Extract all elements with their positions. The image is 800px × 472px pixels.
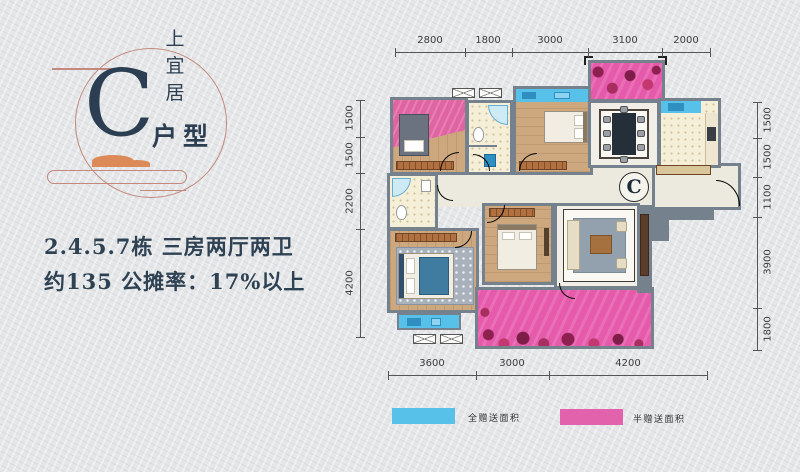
brand-char: 上 bbox=[163, 26, 187, 53]
legend-label-half-gift: 半赠送面积 bbox=[633, 412, 686, 425]
dim-top-4: 3100 bbox=[612, 35, 637, 46]
legend-swatch-full-gift bbox=[392, 408, 455, 424]
room-dining bbox=[588, 100, 660, 168]
bay-item bbox=[407, 318, 421, 326]
dim-line-right bbox=[757, 102, 758, 350]
room-living bbox=[554, 203, 640, 289]
brand-char: 居 bbox=[163, 80, 187, 107]
window-icon bbox=[479, 88, 502, 98]
wardrobe bbox=[395, 233, 457, 242]
window-icon bbox=[413, 334, 436, 344]
bed bbox=[398, 253, 454, 299]
shower bbox=[392, 178, 411, 197]
cloud-deco-underline bbox=[140, 190, 186, 191]
coffee-table bbox=[590, 235, 612, 254]
bed bbox=[497, 224, 537, 270]
cloud-deco-line bbox=[47, 170, 187, 184]
balcony-bottom-half-gift bbox=[475, 287, 654, 349]
dim-right-4: 3900 bbox=[763, 249, 774, 274]
unit-marker: C bbox=[619, 172, 649, 202]
logo-unit-suffix: 户型 bbox=[152, 117, 214, 153]
floor-plan: C bbox=[383, 55, 748, 355]
logo-unit-letter: C bbox=[84, 58, 154, 150]
kitchen-sink bbox=[668, 103, 684, 111]
window-icon bbox=[440, 334, 463, 344]
wall-bracket bbox=[658, 56, 667, 65]
dim-right-2: 1500 bbox=[763, 144, 774, 169]
sink bbox=[421, 180, 431, 192]
balcony-top-half-gift bbox=[588, 60, 665, 102]
dim-line-bottom bbox=[388, 375, 707, 376]
brand-name-vertical: 上 宜 居 bbox=[163, 26, 187, 107]
legend-swatch-half-gift bbox=[560, 409, 623, 425]
dim-left-3: 2200 bbox=[345, 188, 356, 213]
tv-wall bbox=[637, 205, 652, 293]
partition-wall bbox=[469, 145, 497, 147]
stove bbox=[707, 127, 716, 141]
dim-bottom-1: 3600 bbox=[419, 358, 444, 369]
dim-left-2: 1500 bbox=[345, 142, 356, 167]
floorplan-poster: C 上 宜 居 户型 2.4.5.7栋 三房两厅两卫 约135 公摊率：17%以… bbox=[0, 0, 800, 472]
headboard bbox=[498, 225, 536, 230]
dim-right-1: 1500 bbox=[763, 107, 774, 132]
toilet bbox=[473, 127, 484, 142]
dim-top-3: 3000 bbox=[537, 35, 562, 46]
armchair bbox=[616, 221, 627, 232]
dim-top-1: 2800 bbox=[417, 35, 442, 46]
toilet bbox=[396, 205, 407, 220]
dim-bottom-3: 4200 bbox=[615, 358, 640, 369]
dim-right-5: 1800 bbox=[763, 316, 774, 341]
dim-top-2: 1800 bbox=[475, 35, 500, 46]
headboard bbox=[583, 112, 587, 142]
armchair bbox=[616, 258, 627, 269]
window-icon bbox=[452, 88, 475, 98]
shoe-cabinet bbox=[656, 165, 711, 175]
bay-counter bbox=[554, 92, 570, 99]
dim-bottom-2: 3000 bbox=[499, 358, 524, 369]
room-kitchen bbox=[658, 98, 721, 168]
dim-left-1: 1500 bbox=[345, 105, 356, 130]
bay-item bbox=[431, 318, 441, 326]
structural-wall bbox=[652, 208, 669, 241]
dim-top-5: 2000 bbox=[673, 35, 698, 46]
shower bbox=[488, 105, 508, 125]
headboard bbox=[399, 254, 404, 298]
pillow bbox=[404, 140, 424, 152]
room-bathroom-1 bbox=[387, 173, 438, 230]
tv-board bbox=[544, 228, 549, 256]
dining-table bbox=[612, 113, 636, 155]
tv-cabinet bbox=[640, 214, 649, 276]
legend-label-full-gift: 全赠送面积 bbox=[468, 411, 521, 424]
gift-kitchen-bay bbox=[661, 101, 701, 113]
brand-char: 宜 bbox=[163, 53, 187, 80]
mountain-icon bbox=[124, 160, 150, 167]
bed bbox=[544, 111, 588, 143]
wall-bracket bbox=[584, 56, 593, 65]
unit-description-line1: 2.4.5.7栋 三房两厅两卫 bbox=[44, 231, 294, 261]
dim-right-3: 1100 bbox=[763, 184, 774, 209]
gift-bay-master bbox=[397, 313, 461, 330]
bed bbox=[399, 114, 429, 156]
sofa bbox=[567, 220, 580, 270]
dim-line-left bbox=[360, 100, 361, 337]
unit-description-line2: 约135 公摊率：17%以上 bbox=[44, 266, 305, 296]
gift-bay-window bbox=[516, 89, 588, 102]
dim-left-4: 4200 bbox=[345, 270, 356, 295]
blanket bbox=[419, 257, 449, 295]
kitchen-counter bbox=[705, 113, 718, 165]
bay-sink bbox=[522, 92, 536, 99]
